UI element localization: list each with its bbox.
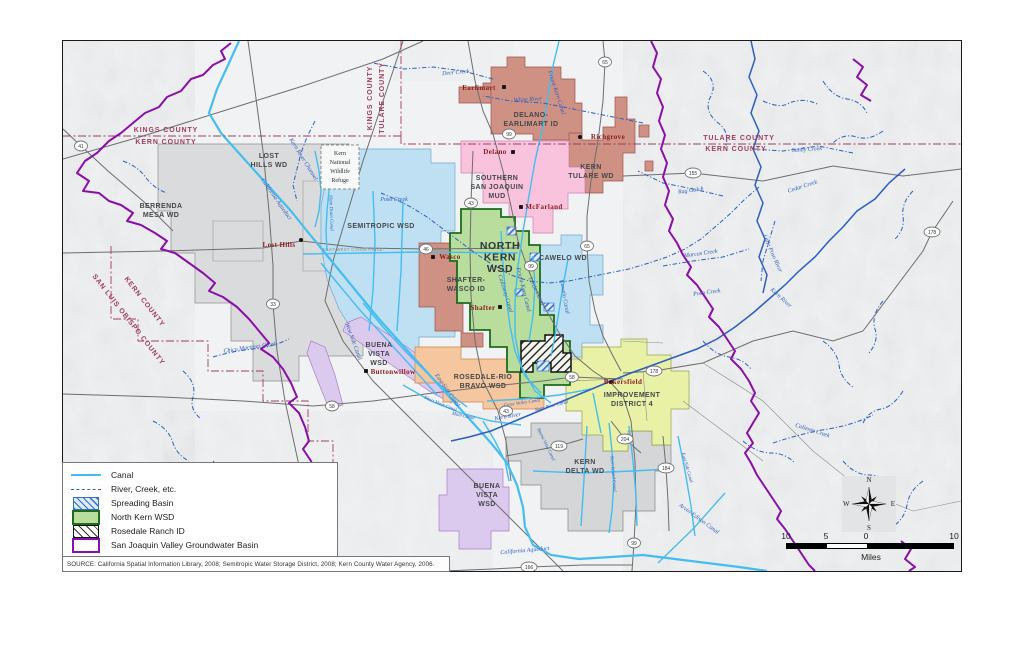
county-label: KINGS COUNTY: [367, 66, 374, 130]
district-label: WSD: [370, 360, 388, 367]
scale-tick-label: 0: [864, 531, 869, 541]
highway-shield: 41: [75, 141, 88, 151]
svg-text:184: 184: [662, 466, 671, 472]
town-label: Earlimart: [462, 84, 496, 92]
legend-item-label: San Joaquin Valley Groundwater Basin: [111, 540, 258, 550]
svg-text:43: 43: [468, 201, 474, 207]
highway-shield: 178: [646, 366, 662, 376]
district-label: MESA WD: [143, 212, 179, 219]
legend-item-label: Rosedale Ranch ID: [111, 526, 185, 536]
district-label: KERN: [580, 164, 601, 171]
district-label: KERN: [574, 459, 595, 466]
highway-shield: 178: [924, 227, 940, 237]
svg-text:58: 58: [329, 404, 335, 410]
ranch-swatch-icon: [71, 525, 101, 538]
nk-swatch-icon: [71, 510, 101, 525]
town-marker: [519, 205, 523, 209]
district-label: DELANO-: [514, 112, 549, 119]
highway-shield: 46: [420, 244, 433, 254]
canal-swatch-icon: [71, 474, 101, 476]
highway-shield: 58: [566, 372, 579, 382]
svg-text:41: 41: [78, 144, 84, 150]
town-marker: [364, 369, 368, 373]
highway-shield: 119: [551, 441, 567, 451]
district-label: BRAVO WSD: [460, 383, 507, 390]
district-label: IMPROVEMENT: [604, 392, 661, 399]
highway-shield: 155: [685, 168, 701, 178]
gwb-swatch-icon: [71, 538, 101, 553]
svg-text:178: 178: [650, 369, 659, 375]
highway-shield: 99: [628, 538, 641, 548]
wildlife-refuge-label: Refuge: [331, 177, 349, 184]
legend-item: Rosedale Ranch ID: [71, 524, 329, 538]
wildlife-refuge-label: Kern: [334, 151, 346, 157]
district-label: WASCO ID: [447, 286, 486, 293]
district-label: TULARE WD: [568, 173, 614, 180]
highway-shield: 65: [599, 57, 612, 67]
highway-shield: 184: [658, 463, 674, 473]
district-label: VISTA: [476, 492, 498, 499]
legend-item-label: River, Creek, etc.: [111, 484, 176, 494]
district-kern-tulare-piece: [645, 161, 653, 171]
svg-text:155: 155: [689, 171, 698, 177]
highway-shield: 65: [581, 241, 594, 251]
district-label: SOUTHERN: [476, 175, 518, 182]
town-label: Delano: [483, 148, 506, 156]
district-label: BUENA: [366, 342, 393, 349]
scale-bar-bar: [786, 543, 954, 549]
district-label: ROSEDALE-RIO: [454, 374, 513, 381]
conveyance-label: EAST-WEST CONVEYANCE: [323, 247, 383, 252]
district-label: BUENA: [474, 483, 501, 490]
town-marker: [511, 150, 515, 154]
wildlife-refuge-label: Wildlife: [330, 168, 350, 175]
legend: CanalRiver, Creek, etc.Spreading BasinNo…: [62, 462, 338, 557]
county-label: KERN COUNTY: [135, 139, 196, 146]
svg-text:204: 204: [621, 437, 630, 443]
district-label: CAWELO WD: [539, 255, 587, 262]
svg-text:99: 99: [506, 132, 512, 138]
town-label: Shafter: [471, 304, 496, 312]
town-label: Lost Hills: [263, 241, 296, 249]
district-label: SHAFTER-: [447, 277, 486, 284]
legend-item: San Joaquin Valley Groundwater Basin: [71, 538, 329, 552]
legend-item-label: North Kern WSD: [111, 512, 174, 522]
county-label: TULARE COUNTY: [703, 135, 775, 142]
legend-item: Canal: [71, 468, 329, 482]
svg-text:58: 58: [569, 375, 575, 381]
county-label: KERN COUNTY: [705, 146, 766, 153]
source-box: SOURCE: California Spatial Information L…: [62, 556, 450, 572]
highway-shield: 99: [525, 261, 538, 271]
highway-shield: 99: [503, 129, 516, 139]
district-kern-tulare-piece: [639, 125, 649, 137]
town-label: Buttonwillow: [371, 368, 416, 376]
district-label: KERN: [484, 252, 516, 264]
district-label: BERRENDA: [140, 203, 183, 210]
town-marker: [578, 135, 582, 139]
legend-item: Spreading Basin: [71, 496, 329, 510]
district-label: MUD: [488, 193, 505, 200]
legend-item: North Kern WSD: [71, 510, 329, 524]
legend-item-label: Spreading Basin: [111, 498, 173, 508]
district-label: HILLS WD: [250, 162, 287, 169]
district-label: SAN JOAQUIN: [470, 184, 523, 191]
highway-shield: 204: [617, 434, 633, 444]
town-marker: [498, 305, 502, 309]
district-label: WSD: [478, 501, 496, 508]
highway-shield: 33: [267, 299, 280, 309]
compass-east-label: E: [891, 500, 895, 508]
district-label: DISTRICT 4: [611, 401, 653, 408]
wildlife-refuge-label: National: [330, 160, 351, 166]
district-label: SEMITROPIC WSD: [347, 223, 414, 230]
district-label: NORTH: [480, 240, 520, 252]
scale-tick-label: 5: [824, 531, 829, 541]
district-label: LOST: [259, 153, 280, 160]
legend-item: River, Creek, etc.: [71, 482, 329, 496]
svg-text:166: 166: [525, 565, 534, 571]
river-swatch-icon: [71, 489, 101, 490]
county-label: KINGS COUNTY: [134, 127, 198, 134]
compass-west-label: W: [843, 500, 850, 508]
district-label: VISTA: [368, 351, 390, 358]
compass-star-icon: [850, 485, 888, 523]
town-label: Wasco: [439, 253, 461, 261]
highway-shield: 166: [521, 562, 537, 571]
highway-shield: 58: [326, 401, 339, 411]
town-label: McFarland: [525, 203, 562, 211]
district-label: WSD: [487, 263, 513, 275]
compass-rose: N S W E: [842, 476, 896, 532]
svg-text:46: 46: [423, 247, 429, 253]
svg-text:119: 119: [555, 444, 563, 450]
svg-text:65: 65: [584, 244, 590, 250]
town-marker: [431, 255, 435, 259]
svg-text:33: 33: [270, 302, 276, 308]
district-label: EARLIMART ID: [504, 121, 559, 128]
svg-text:65: 65: [602, 60, 608, 66]
svg-text:99: 99: [631, 541, 637, 547]
scale-bar-unit: Miles: [778, 552, 964, 562]
town-label: Bakersfield: [604, 378, 643, 386]
source-note: SOURCE: California Spatial Information L…: [67, 561, 435, 568]
town-label: Richgrove: [591, 133, 625, 141]
county-label: TULARE COUNTY: [379, 62, 386, 134]
town-marker: [299, 238, 303, 242]
scale-tick-label: 10: [781, 531, 790, 541]
highway-shield: 43: [465, 198, 478, 208]
compass-north-label: N: [866, 476, 871, 484]
scale-tick-label: 10: [949, 531, 958, 541]
legend-item-label: Canal: [111, 470, 133, 480]
map-page: 4165994315546659933178585817843119204184…: [0, 0, 1024, 663]
town-marker: [502, 85, 506, 89]
district-label: DELTA WD: [566, 468, 605, 475]
spread-swatch-icon: [71, 497, 101, 510]
waterway-label: Poso Creek: [379, 197, 408, 203]
scale-bar: 105010 Miles: [778, 531, 964, 565]
svg-text:99: 99: [528, 264, 534, 270]
svg-text:178: 178: [928, 230, 937, 236]
